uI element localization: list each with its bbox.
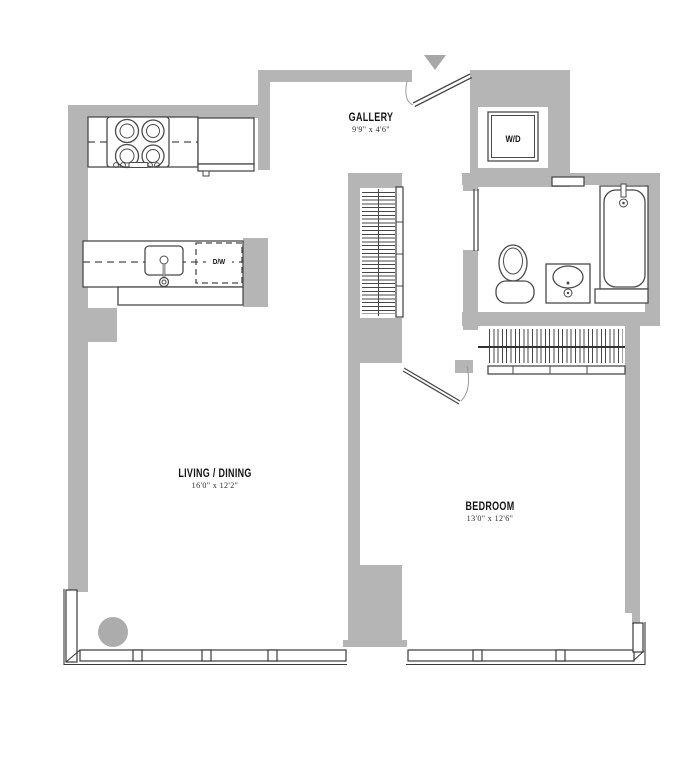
toilet-icon <box>496 245 534 303</box>
bedroom-window-band <box>408 650 634 661</box>
pocket-door <box>474 189 478 251</box>
washer-dryer-label: W/D <box>505 133 520 144</box>
living-window-band <box>80 650 346 661</box>
structural-column <box>98 617 128 647</box>
bathroom-shelf <box>552 177 584 186</box>
living-dining-label: LIVING / DINING <box>178 468 251 480</box>
stove-icon <box>107 117 169 168</box>
bedroom-closet-doors <box>488 366 625 374</box>
bedroom-label: BEDROOM <box>466 501 515 513</box>
gallery-closet-door <box>396 187 403 317</box>
corner-window-east <box>633 623 643 652</box>
gallery-dims: 9'9" x 4'6" <box>352 125 390 134</box>
kitchen-island-lower <box>118 287 243 305</box>
entry-door <box>406 74 472 107</box>
bathtub-icon <box>595 184 648 303</box>
bathroom <box>474 177 648 303</box>
entry-arrow-icon <box>424 55 446 70</box>
bedroom-dims: 13'0" x 12'6" <box>467 514 514 523</box>
bathroom-sink-icon <box>546 264 590 303</box>
kitchen <box>83 117 254 305</box>
refrigerator-icon <box>198 118 254 176</box>
gallery-closet-divider <box>378 189 379 316</box>
floor-plan: GALLERY 9'9" x 4'6" LIVING / DINING 16'0… <box>0 0 695 763</box>
gallery-label: GALLERY <box>349 112 394 124</box>
floor-plan-drawing: GALLERY 9'9" x 4'6" LIVING / DINING 16'0… <box>0 0 695 763</box>
dishwasher-label: D/W <box>213 259 226 267</box>
bedroom-closet-rod <box>478 346 625 348</box>
corner-window-west <box>66 590 77 662</box>
living-dining-dims: 16'0" x 12'2" <box>192 481 239 490</box>
